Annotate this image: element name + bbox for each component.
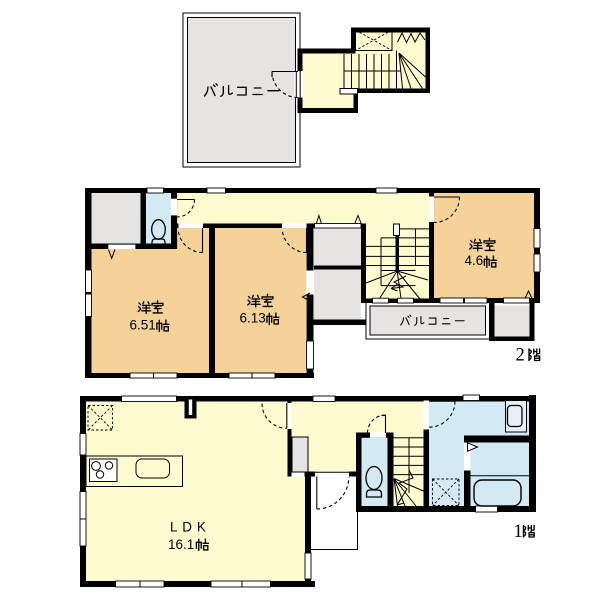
svg-text:4.6: 4.6	[465, 253, 484, 268]
svg-text:2: 2	[516, 346, 525, 366]
svg-text:16.1: 16.1	[168, 537, 194, 552]
svg-text:LDK: LDK	[170, 520, 211, 535]
svg-text:1: 1	[514, 522, 523, 542]
svg-text:6.13: 6.13	[240, 311, 266, 326]
svg-text:6.51: 6.51	[130, 318, 156, 333]
